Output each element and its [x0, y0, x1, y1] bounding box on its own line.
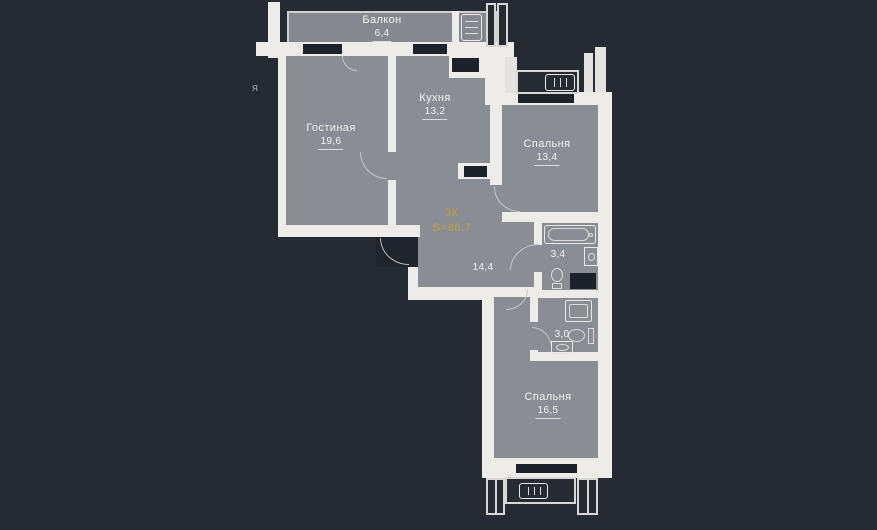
pillar-bedroom1-right-a: [584, 53, 593, 92]
ac-rib: [540, 487, 541, 495]
ac-rib: [528, 487, 529, 495]
bathtub-icon: [544, 225, 596, 244]
wall-segment-living-bottom: [278, 225, 420, 237]
room-area: 13,4: [535, 151, 560, 166]
bathtub-drain: [589, 233, 593, 237]
room-label-hallway: 14,4: [471, 261, 496, 274]
toilet-bowl: [551, 268, 563, 282]
apartment-area: S=86,7: [433, 221, 472, 236]
pillar-balcony-b: [497, 3, 508, 47]
pillar-bottom-left: [486, 478, 505, 515]
pillar-bottom-right: [577, 478, 598, 515]
room-area: 19,6: [319, 135, 344, 150]
wall-segment-right: [598, 92, 612, 478]
ac-rib: [566, 78, 567, 87]
shaft-kitchen-mid: [464, 166, 487, 177]
shaft-kitchen-top: [452, 58, 479, 72]
ac-unit-icon-balcony: [461, 14, 482, 41]
sink-icon-wc: [551, 341, 573, 354]
floor-plan: Балкон 6,4 Гостиная 19,6 Кухня 13,2 Спал…: [0, 0, 877, 530]
window-bedroom1: [518, 94, 574, 103]
ac-rib: [465, 33, 478, 34]
toilet-tank: [552, 283, 562, 289]
shower-inner: [569, 304, 588, 318]
pillar-bedroom1-right-b: [595, 47, 606, 92]
toilet-tank: [588, 328, 594, 344]
room-area: 14,4: [471, 261, 496, 274]
apartment-summary: 3К S=86,7: [433, 206, 472, 236]
sink-basin: [556, 344, 569, 351]
ac-rib: [465, 21, 478, 22]
wall-segment-living-kitchen: [388, 56, 396, 152]
shaft-bathroom: [570, 273, 596, 289]
pillar-balcony-a: [486, 3, 496, 47]
wall-segment-wc-left-upper: [530, 298, 538, 322]
ac-unit-icon-bedroom1: [545, 74, 575, 91]
wall-segment-bedroom1-left: [490, 105, 502, 185]
room-area: 6,4: [373, 27, 392, 42]
room-name: Балкон: [362, 14, 401, 27]
shower-icon: [565, 300, 592, 322]
room-area: 13,2: [423, 105, 448, 120]
adjacent-unit-text: я: [252, 82, 258, 94]
ac-rib: [534, 487, 535, 495]
ac-rib: [554, 78, 555, 87]
room-name: Кухня: [419, 92, 450, 105]
wall-segment-bath-div-upper: [534, 223, 542, 245]
toilet-icon-bathroom: [549, 268, 565, 289]
room-label-bedroom2: Спальня 16,5: [525, 391, 572, 419]
room-label-kitchen: Кухня 13,2: [419, 92, 450, 120]
room-name: Спальня: [524, 138, 571, 151]
sink-basin: [588, 253, 595, 261]
room-label-bedroom1: Спальня 13,4: [524, 138, 571, 166]
room-area: 3,4: [549, 248, 568, 261]
ac-rib: [560, 78, 561, 87]
room-area: 3,0: [553, 328, 572, 341]
room-label-balcony: Балкон 6,4: [362, 14, 401, 42]
room-label-bathroom: 3,4: [549, 248, 568, 261]
wall-segment-balcony-divider: [452, 11, 459, 42]
bathtub-inner: [548, 228, 589, 241]
ac-rib: [465, 27, 478, 28]
wall-segment-left: [278, 42, 286, 237]
room-name: Гостиная: [306, 122, 355, 135]
pillar-inner-line: [587, 480, 589, 513]
room-name: Спальня: [525, 391, 572, 404]
window-balcony-left: [303, 44, 342, 54]
window-balcony-right: [413, 44, 447, 54]
room-label-wc: 3,0: [553, 328, 572, 341]
pillar-inner-line: [495, 480, 497, 513]
apartment-type: 3К: [433, 206, 472, 221]
ac-unit-icon-bedroom2: [519, 483, 548, 499]
window-bedroom2: [516, 464, 577, 473]
sink-icon-bathroom: [584, 247, 598, 266]
wall-segment-bath-wc: [534, 290, 612, 298]
room-area: 16,5: [536, 404, 561, 419]
wall-segment-wing-left: [482, 290, 494, 478]
door-gap-kitchen: [388, 152, 396, 180]
wall-segment-tee-stub: [256, 42, 286, 56]
room-label-living: Гостиная 19,6: [306, 122, 355, 150]
wall-segment-bedroom1-bottom: [502, 212, 612, 222]
